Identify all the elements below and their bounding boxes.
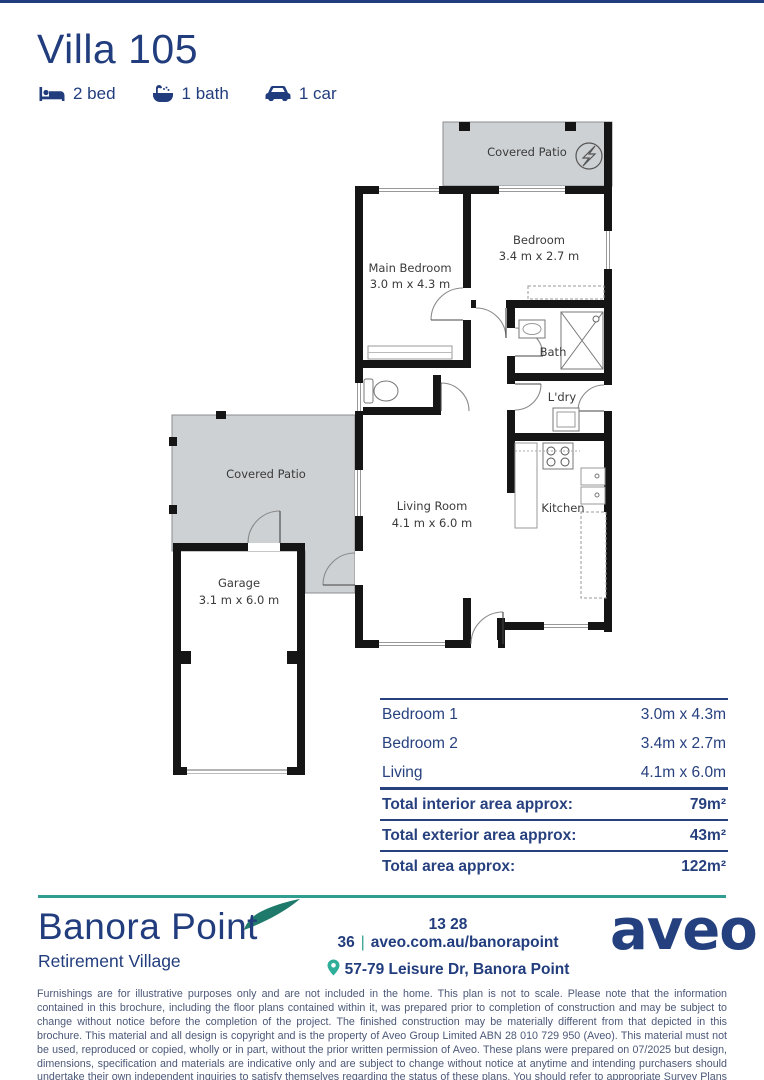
brochure-page: Villa 105 2 bed xyxy=(0,0,764,1080)
label-kitchen: Kitchen xyxy=(541,501,584,515)
feature-beds-label: 2 bed xyxy=(73,84,116,104)
floor-plan: Covered Patio Main Bedroom 3.0 m x 4.3 m… xyxy=(150,105,650,795)
label-main-bedroom: Main Bedroom xyxy=(368,261,451,275)
table-row: Bedroom 1 3.0m x 4.3m xyxy=(380,700,728,729)
label-garage-dims: 3.1 m x 6.0 m xyxy=(199,593,279,607)
pantry-dashed xyxy=(581,512,606,598)
feature-cars: 1 car xyxy=(265,84,337,104)
feature-baths-label: 1 bath xyxy=(182,84,229,104)
robe-bedroom2 xyxy=(528,286,604,299)
website-url: aveo.com.au/banorapoint xyxy=(371,934,559,951)
table-row: Bedroom 2 3.4m x 2.7m xyxy=(380,729,728,758)
label-covered-patio-left: Covered Patio xyxy=(226,467,306,481)
label-bedroom2-dims: 3.4 m x 2.7 m xyxy=(499,249,579,263)
stove-fixture xyxy=(543,443,573,469)
toilet-fixture xyxy=(364,379,373,403)
table-row-total-area: Total area approx: 122m² xyxy=(380,852,728,881)
label-covered-patio-top: Covered Patio xyxy=(487,145,567,159)
feature-cars-label: 1 car xyxy=(299,84,337,104)
page-title: Villa 105 xyxy=(37,26,198,73)
feature-row: 2 bed 1 bath xyxy=(39,84,337,104)
table-row: Living 4.1m x 6.0m xyxy=(380,758,728,787)
bed-icon xyxy=(39,86,65,103)
label-bath: Bath xyxy=(540,345,567,359)
kitchen-counter xyxy=(515,443,537,528)
top-accent-line xyxy=(0,0,764,3)
contact-block: 13 28 36|aveo.com.au/banorapoint 57-79 L… xyxy=(318,916,578,981)
bath-icon xyxy=(152,84,174,104)
village-name: Banora Point xyxy=(38,907,258,948)
label-laundry: L'dry xyxy=(548,390,577,404)
car-icon xyxy=(265,85,291,103)
fixtures xyxy=(364,286,606,598)
address: 57-79 Leisure Dr, Banora Point xyxy=(345,961,570,979)
label-living-dims: 4.1 m x 6.0 m xyxy=(392,516,472,530)
village-logo: Banora Point Retirement Village xyxy=(38,907,258,972)
location-pin-icon xyxy=(327,959,340,981)
feature-beds: 2 bed xyxy=(39,84,116,104)
village-subtitle: Retirement Village xyxy=(38,951,258,972)
label-garage: Garage xyxy=(218,576,260,590)
label-main-bedroom-dims: 3.0 m x 4.3 m xyxy=(370,277,450,291)
covered-patio-left xyxy=(169,411,355,593)
table-row-total-exterior: Total exterior area approx: 43m² xyxy=(380,821,728,850)
separator: | xyxy=(355,934,371,951)
table-row-total-interior: Total interior area approx: 79m² xyxy=(380,790,728,819)
label-bedroom2: Bedroom xyxy=(513,233,565,247)
label-living: Living Room xyxy=(397,499,468,513)
aveo-logo: aveo xyxy=(610,898,757,963)
feature-baths: 1 bath xyxy=(152,84,229,104)
area-table: Bedroom 1 3.0m x 4.3m Bedroom 2 3.4m x 2… xyxy=(380,698,728,881)
shower-fixture xyxy=(561,312,603,369)
disclaimer-text: Furnishings are for illustrative purpose… xyxy=(37,988,727,1080)
